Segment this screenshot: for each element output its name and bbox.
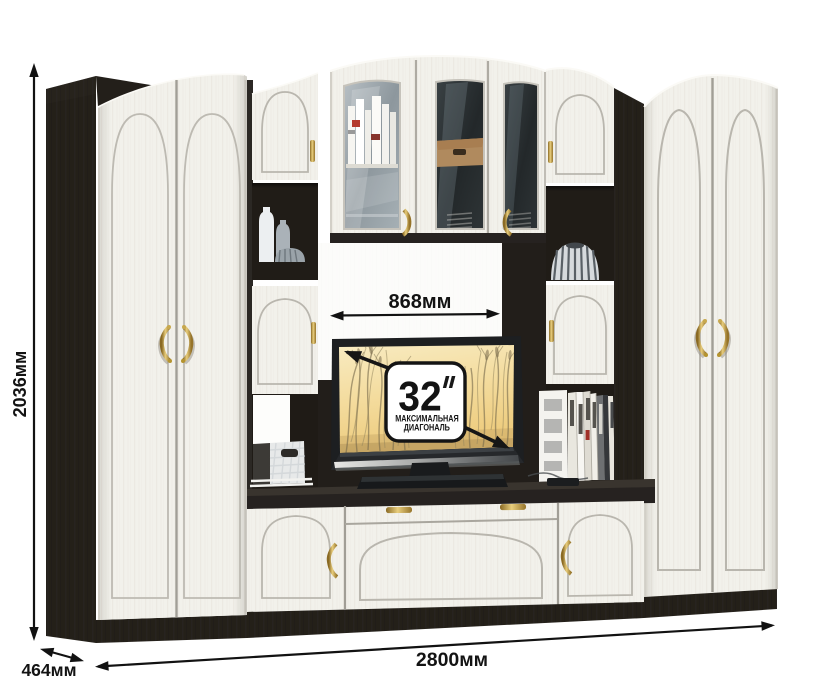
svg-text:2800мм: 2800мм <box>416 649 488 671</box>
svg-text:2036мм: 2036мм <box>10 351 30 418</box>
svg-text:868мм: 868мм <box>389 291 452 313</box>
svg-text:ДИАГОНАЛЬ: ДИАГОНАЛЬ <box>404 422 450 433</box>
svg-text:464мм: 464мм <box>21 660 76 680</box>
